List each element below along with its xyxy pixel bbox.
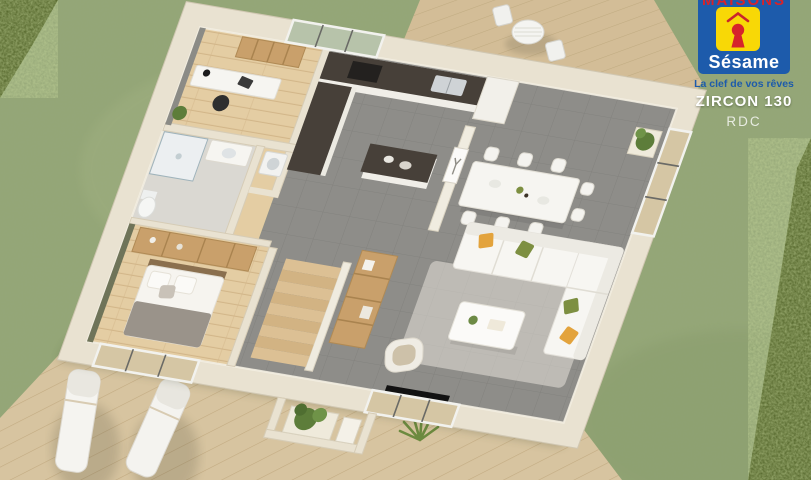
cushion-orange-1 <box>478 233 493 249</box>
brand-name: Sésame <box>708 52 779 72</box>
pillow-accent <box>158 285 176 299</box>
floorplan-render: MAISONS Sésame La clef de vos rêves ZIRC… <box>0 0 811 480</box>
plan-model-title: ZIRCON 130 <box>696 93 793 110</box>
brand-badge: MAISONS Sésame <box>698 0 790 74</box>
plan-floor-label: RDC <box>726 114 761 129</box>
brand-tagline: La clef de vos rêves <box>694 78 794 90</box>
scene-canvas: MAISONS Sésame La clef de vos rêves ZIRC… <box>0 0 811 480</box>
